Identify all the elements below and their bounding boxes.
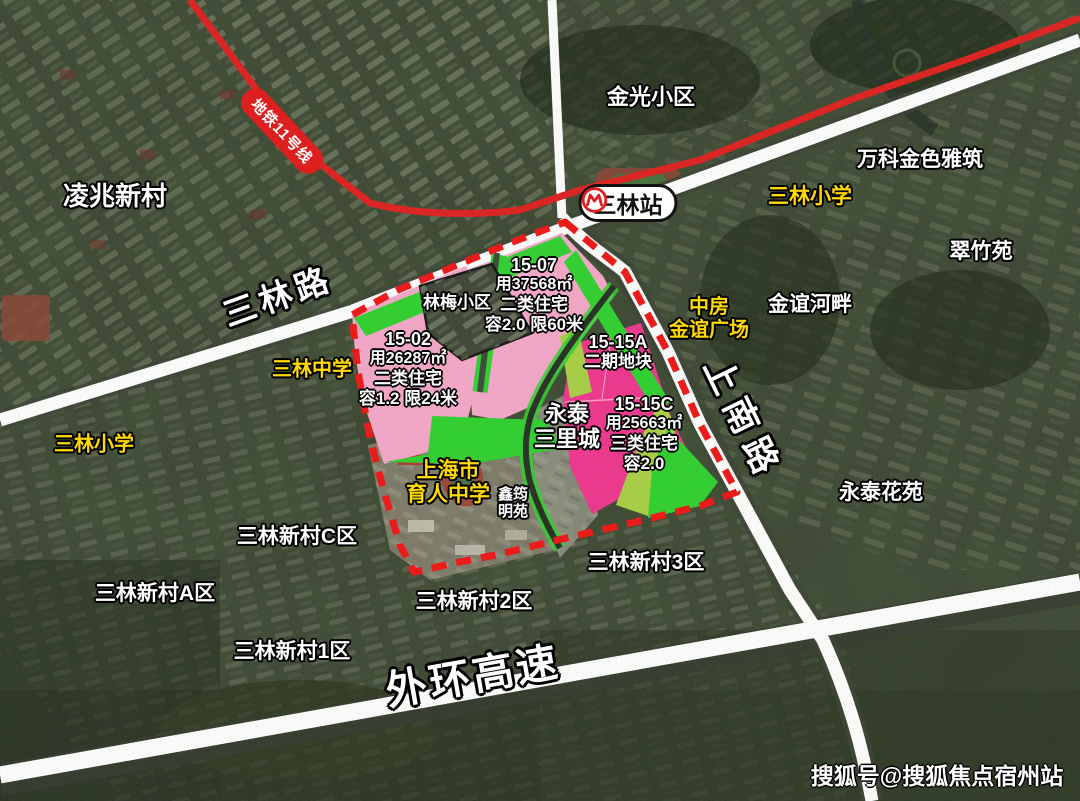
place-sanlin-primary-east: 三林小学 — [768, 185, 852, 209]
parcel-15-07-id: 15-07 — [485, 255, 583, 275]
place-xincun-3: 三林新村3区 — [588, 551, 705, 575]
place-yuren-line2: 育人中学 — [406, 483, 490, 507]
parcel-15-15a-note: 二期地块 — [584, 352, 652, 372]
parcel-label-15-15c: 15-15C 用25663㎡ 三类住宅 容2.0 — [606, 394, 683, 474]
place-cuizhuyuan: 翠竹苑 — [950, 240, 1013, 264]
parcel-15-02-area: 用26287㎡ — [359, 349, 457, 369]
parcel-label-15-15a: 15-15A 二期地块 — [584, 332, 652, 372]
parcel-15-02-id: 15-02 — [359, 329, 457, 349]
place-yuren-middle-school: 上海市 育人中学 — [406, 459, 490, 507]
place-vanke-jinse-yazhu: 万科金色雅筑 — [857, 148, 983, 172]
place-xincun-c: 三林新村C区 — [237, 525, 357, 549]
parcel-15-15a-id: 15-15A — [584, 332, 652, 352]
parcel-15-02-type: 二类住宅 — [359, 369, 457, 389]
place-jinguang-xiaoqu: 金光小区 — [607, 84, 695, 109]
place-yongtai-huayuan: 永泰花苑 — [839, 481, 923, 505]
place-xinyun-line2: 明苑 — [498, 503, 528, 520]
place-linmei-xiaoqu: 林梅小区 — [423, 293, 491, 313]
place-yongtai-sanlicheng: 永泰 三里城 — [534, 402, 600, 453]
parcel-15-07-type: 二类住宅 — [485, 295, 583, 315]
place-zhongfang-line1: 中房 — [669, 296, 749, 319]
parcel-15-15c-far: 容2.0 — [606, 454, 683, 474]
parcel-label-15-02: 15-02 用26287㎡ 二类住宅 容1.2 限24米 — [359, 329, 457, 409]
watermark: 搜狐号@搜狐焦点宿州站 — [811, 763, 1063, 789]
place-xinyun-mingyuan: 鑫筠 明苑 — [498, 486, 528, 521]
parcel-label-15-07: 15-07 用37568㎡ 二类住宅 容2.0 限60米 — [485, 255, 583, 335]
parcel-15-02-far: 容1.2 限24米 — [359, 389, 457, 409]
place-xincun-2: 三林新村2区 — [416, 590, 533, 614]
place-lingzhao-xincun: 凌兆新村 — [63, 182, 167, 212]
parcel-15-15c-type: 三类住宅 — [606, 434, 683, 454]
parcel-15-07-area: 用37568㎡ — [485, 275, 583, 295]
place-xincun-a: 三林新村A区 — [95, 582, 215, 606]
parcel-15-15c-id: 15-15C — [606, 394, 683, 414]
place-zhongfang-jinyi-plaza: 中房 金谊广场 — [669, 296, 749, 342]
place-jinyi-hepan: 金谊河畔 — [768, 293, 852, 317]
parcel-15-07-far: 容2.0 限60米 — [485, 315, 583, 335]
place-sanlin-middle-school: 三林中学 — [272, 359, 352, 382]
place-xinyun-line1: 鑫筠 — [498, 486, 528, 503]
place-zhongfang-line2: 金谊广场 — [669, 319, 749, 342]
satellite-planning-map: 地铁11号线 三林站 三林路 上南路 外环高速 凌兆新村 金光小区 万科金色雅筑… — [0, 0, 1080, 801]
station-badge: 三林站 — [579, 184, 678, 222]
place-yongtai-line2: 三里城 — [534, 427, 600, 452]
place-yuren-line1: 上海市 — [406, 459, 490, 483]
place-yongtai-line1: 永泰 — [534, 402, 600, 427]
parcel-15-15c-area: 用25663㎡ — [606, 414, 683, 434]
place-sanlin-primary-west: 三林小学 — [54, 434, 134, 457]
place-xincun-1: 三林新村1区 — [234, 640, 351, 664]
